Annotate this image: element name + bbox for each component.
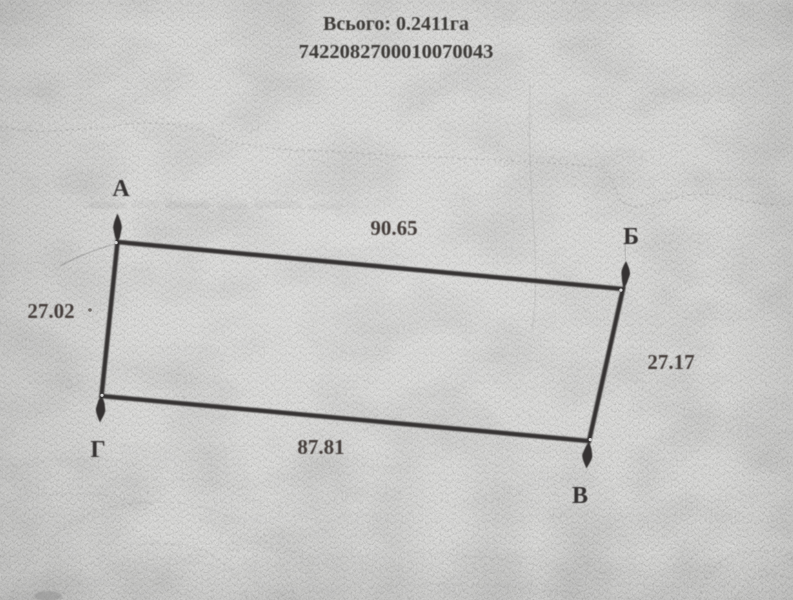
svg-text:Г: Г — [90, 437, 105, 463]
svg-text:90.65: 90.65 — [370, 216, 417, 240]
svg-text:27.02: 27.02 — [27, 299, 74, 323]
svg-text:27.17: 27.17 — [647, 350, 694, 374]
svg-text:А: А — [112, 176, 130, 202]
svg-text:87.81: 87.81 — [297, 435, 344, 459]
svg-text:7422082700010070043: 7422082700010070043 — [299, 41, 494, 63]
svg-text:Всього: 0.2411га: Всього: 0.2411га — [323, 13, 469, 35]
svg-text:Б: Б — [623, 224, 639, 250]
svg-text:В: В — [572, 483, 588, 509]
